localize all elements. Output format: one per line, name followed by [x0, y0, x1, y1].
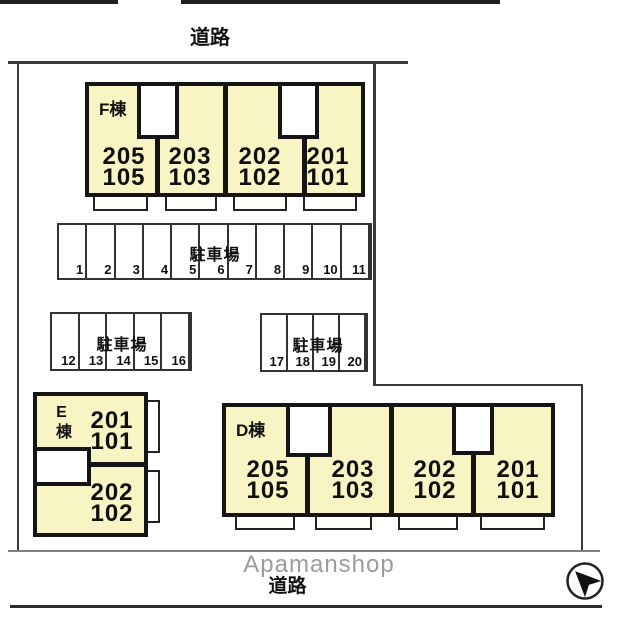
- building-f-label: F棟: [99, 95, 126, 120]
- unit-divider-wall: [389, 407, 394, 513]
- building-d: D棟 205105 203103 202102 201101: [222, 403, 555, 517]
- boundary-line-top: [8, 61, 408, 64]
- balcony: [146, 400, 160, 453]
- boundary-line-left: [17, 61, 19, 551]
- parking-stall: 2: [87, 225, 115, 278]
- top-edge-bar-left: [0, 0, 118, 4]
- boundary-line-right-upper: [373, 61, 376, 386]
- road-label-top: 道路: [160, 21, 260, 50]
- top-edge-bar-right: [181, 0, 500, 4]
- unit-e-201-101: 201101: [79, 410, 145, 452]
- balcony: [146, 470, 160, 523]
- unit-divider-wall: [305, 455, 310, 513]
- unit-f-203-103: 203103: [155, 146, 225, 188]
- parking-stall: 10: [313, 225, 341, 278]
- parking-lot-3: 17 18 19 20 駐車場: [260, 313, 368, 372]
- parking-lot-2: 12 13 14 15 16 駐車場: [50, 312, 192, 371]
- north-arrow-icon: [565, 561, 605, 601]
- unit-divider-wall: [471, 453, 476, 513]
- parking-lot-1: 1 2 3 4 5 6 7 8 9 10 11 駐車場: [57, 223, 372, 280]
- unit-d-202-102: 202102: [400, 459, 470, 501]
- boundary-line-step: [373, 384, 582, 386]
- site-plan: 道路 F棟 205105 203103 202102 201101 1 2: [0, 0, 640, 626]
- unit-d-205-105: 205105: [233, 459, 303, 501]
- parking-lot-label: 駐車場: [160, 241, 270, 265]
- unit-d-203-103: 203103: [318, 459, 388, 501]
- entrance-notch: [137, 82, 179, 139]
- parking-stall: 11: [342, 225, 370, 278]
- road-edge-line-bottom: [10, 605, 602, 608]
- parking-stall: 9: [285, 225, 313, 278]
- unit-f-205-105: 205105: [89, 146, 159, 188]
- unit-d-201-101: 201101: [483, 459, 553, 501]
- unit-e-202-102: 202102: [79, 482, 145, 524]
- entrance-notch: [286, 403, 332, 457]
- boundary-line-right-lower: [581, 384, 583, 552]
- unit-divider-wall: [87, 462, 148, 467]
- unit-f-201-101: 201101: [293, 146, 363, 188]
- parking-stall: 3: [116, 225, 144, 278]
- parking-lot-label: 駐車場: [263, 332, 373, 356]
- entrance-notch: [452, 403, 494, 455]
- building-e: E棟 201101 202102: [33, 392, 148, 537]
- building-d-label: D棟: [236, 416, 265, 441]
- entrance-notch: [278, 82, 319, 139]
- parking-stall: 1: [59, 225, 87, 278]
- entrance-notch: [33, 447, 91, 486]
- building-f: F棟 205105 203103 202102 201101: [85, 82, 365, 197]
- watermark-apamanshop: Apamanshop: [199, 551, 439, 579]
- unit-f-202-102: 202102: [225, 146, 295, 188]
- parking-lot-label: 駐車場: [67, 331, 177, 355]
